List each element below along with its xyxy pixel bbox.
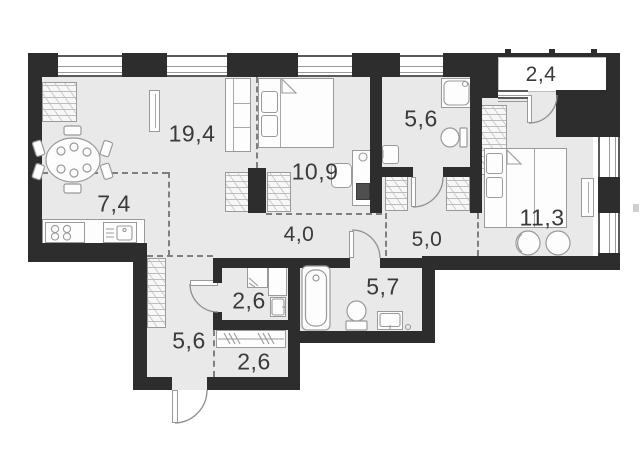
coat-rail-hangers: [218, 333, 284, 344]
door-arc-balcony: [529, 95, 557, 123]
shower-tray: [444, 81, 469, 105]
room-label-bathroom-2: 5,7: [366, 274, 399, 301]
toilet-bathroom: [441, 128, 467, 147]
room-label-wardrobe: 2,6: [237, 349, 270, 376]
room-label-hallway-right: 5,0: [412, 228, 443, 252]
room-label-kitchen: 7,4: [97, 191, 130, 218]
room-label-living-room: 19,4: [169, 121, 216, 148]
desk-lamp: [359, 153, 367, 161]
stove-burners: [51, 225, 70, 240]
dining-table: [32, 126, 114, 193]
room-label-sleeping-area: 10,9: [292, 159, 339, 186]
kitchen-sink-detail: [106, 226, 132, 240]
room-label-entrance-hall: 5,6: [172, 328, 205, 355]
blanket-folds: [282, 79, 521, 164]
room-label-hallway-center: 4,0: [284, 223, 315, 247]
door-arc-utility: [190, 284, 218, 312]
toilet-bathroom2: [346, 301, 367, 330]
door-arc-bathroom2: [352, 230, 380, 258]
bathtub: [302, 266, 330, 330]
room-label-bathroom: 5,6: [404, 106, 437, 133]
floor-plan: 19,4 7,4 10,9 5,6 2,4 11,3 5,0 4,0 5,7 5…: [0, 0, 639, 460]
room-label-bedroom: 11,3: [519, 205, 564, 232]
bedroom-chairs: [516, 231, 570, 255]
door-arc-entrance: [175, 390, 207, 423]
room-label-utility: 2,6: [232, 288, 265, 315]
door-arc-bathroom: [413, 177, 443, 207]
shelf-corner-fold: [249, 278, 258, 287]
room-label-balcony: 2,4: [526, 63, 557, 87]
